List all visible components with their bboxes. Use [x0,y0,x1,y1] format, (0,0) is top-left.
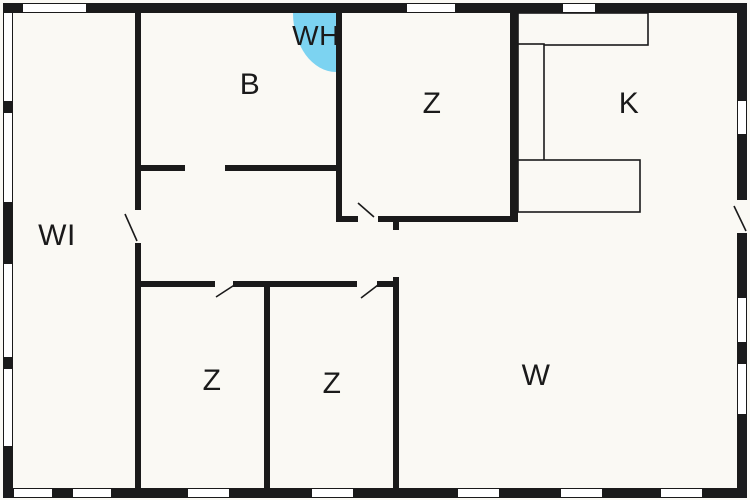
room-label-wi: WI [38,221,76,251]
door-swing-ztop [358,203,374,217]
room-label-wh: WH [292,22,340,50]
kitchen-counter-top [518,13,648,45]
room-label-b: B [240,70,261,100]
room-label-z-bottom-left: Z [203,366,222,396]
kitchen-counter-side [518,44,544,161]
kitchen-counter-bottom [518,160,640,212]
room-label-z-top: Z [423,89,442,119]
door-swing-entrance [734,206,746,231]
door-swing-zmid [361,285,378,298]
room-label-z-bottom-mid: Z [323,369,342,399]
door-swing-wi [125,214,137,241]
door-swing-zleft [216,284,236,297]
room-label-k: K [619,89,640,119]
floor-plan: WI B WH Z K Z Z W [0,0,750,500]
fixtures-overlay [0,0,750,500]
room-label-w: W [522,361,551,391]
